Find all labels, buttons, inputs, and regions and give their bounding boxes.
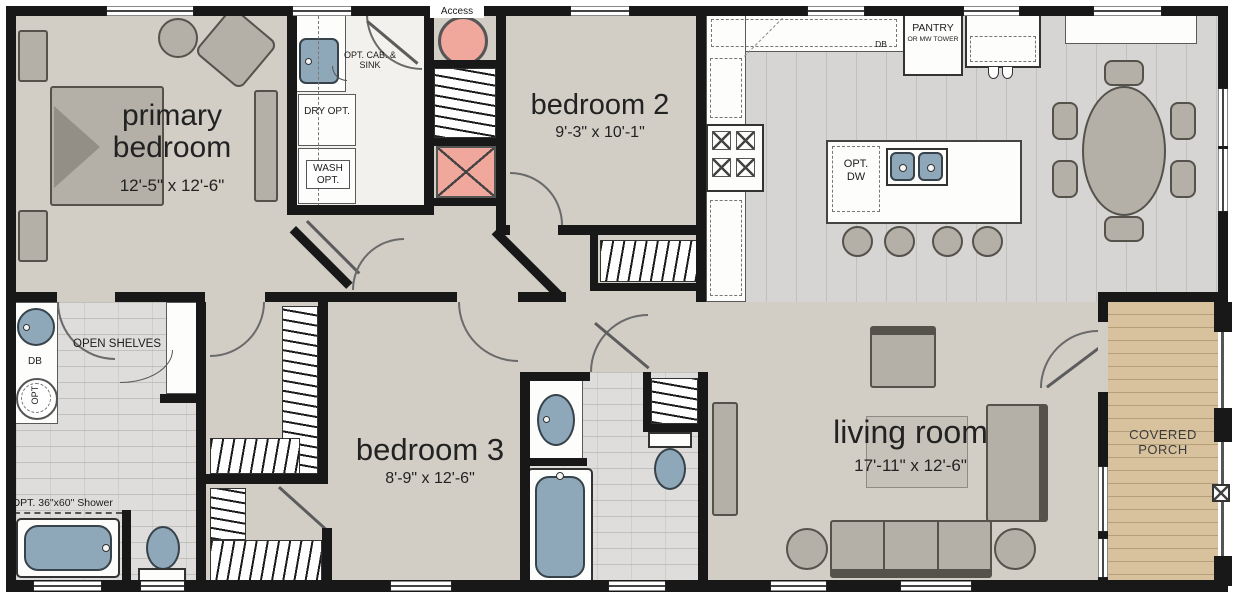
floor-plan: primary bedroom 12'-5" x 12'-6" bedroom … [0, 0, 1234, 596]
window [140, 581, 185, 591]
wall [265, 292, 457, 302]
toilet-tank-icon [648, 432, 692, 448]
side-table-icon [994, 528, 1036, 570]
chair-icon [1170, 160, 1196, 198]
upper-cabinets-dashed [710, 200, 742, 296]
porch-column-icon [1212, 484, 1230, 502]
wall [520, 372, 590, 381]
stool-icon [884, 226, 915, 257]
wall [115, 292, 205, 302]
room-dims-bedroom-2: 9'-3" x 10'-1" [502, 124, 698, 142]
stool-icon [972, 226, 1003, 257]
bathtub-basin-icon [24, 525, 112, 571]
wall [122, 510, 131, 590]
room-dims-primary-bedroom: 12'-5" x 12'-6" [82, 176, 262, 196]
closet-rod-icon [651, 378, 698, 424]
chair-icon [1104, 216, 1144, 242]
sofa-icon [830, 520, 992, 578]
db-kitchen-label: DB [870, 40, 892, 50]
room-label-bedroom-3: bedroom 3 [330, 434, 530, 467]
burner-icon [712, 158, 731, 177]
room-dims-bedroom-3: 8'-9" x 12'-6" [330, 470, 530, 488]
dry-opt-label: DRY OPT. [300, 106, 354, 118]
wall [6, 292, 57, 302]
door-opening [1098, 322, 1108, 392]
room-label-primary-bedroom: primary bedroom [82, 100, 262, 163]
chair-icon [1052, 102, 1078, 140]
porch-edge [1221, 302, 1224, 586]
burner-icon [736, 158, 755, 177]
opt-cab-sink-label: OPT. CAB. & SINK [340, 50, 400, 71]
window [390, 581, 452, 591]
room-label-bedroom-2: bedroom 2 [502, 90, 698, 120]
chase-icon [436, 146, 496, 198]
wall [496, 6, 506, 235]
water-heater-icon [438, 16, 488, 66]
window [1218, 88, 1228, 147]
wall [698, 372, 708, 590]
nightstand-icon [18, 210, 48, 262]
side-table-icon [786, 528, 828, 570]
faucet-icon [102, 544, 110, 552]
db-bath-label: DB [18, 356, 52, 368]
burner-icon [736, 131, 755, 150]
window [807, 6, 865, 16]
window [608, 581, 666, 591]
armchair-icon [870, 326, 936, 388]
room-dims-living-room: 17'-11" x 12'-6" [798, 456, 1023, 476]
bathtub-basin-icon [535, 476, 585, 578]
wall [643, 372, 651, 432]
wall [643, 424, 706, 432]
window [1093, 6, 1162, 16]
room-label-covered-porch: COVERED PORCH [1108, 428, 1218, 458]
wall [529, 458, 587, 466]
chair-icon [1170, 102, 1196, 140]
window [963, 6, 1020, 16]
window [770, 581, 827, 591]
opt-washer-label: OPT [30, 376, 40, 414]
sink-drain-icon [543, 416, 550, 423]
nightstand-icon [18, 30, 48, 82]
wall [424, 6, 434, 212]
upper-cabinets-dashed [710, 58, 742, 118]
wall [434, 198, 496, 206]
stool-icon [932, 226, 963, 257]
room-label-living-room: living room [798, 416, 1023, 450]
fridge-handle-icon [1002, 66, 1013, 79]
sink-drain-icon [899, 164, 907, 172]
wall [434, 138, 496, 146]
burner-icon [712, 131, 731, 150]
window [900, 581, 972, 591]
opt-dw-label: OPT. DW [834, 158, 878, 183]
window [292, 6, 352, 16]
sink-drain-icon [927, 164, 935, 172]
optional-shower-dashed [14, 512, 122, 514]
ottoman-icon [158, 18, 198, 58]
wall [696, 6, 706, 302]
sink-drain-icon [23, 324, 30, 331]
closet-rod-icon [210, 438, 300, 474]
porch-post [1214, 302, 1232, 332]
wall [558, 225, 706, 235]
pantry-label: PANTRY [905, 22, 961, 34]
stool-icon [842, 226, 873, 257]
window [1098, 538, 1108, 578]
closet-rod-icon [210, 540, 322, 582]
pantry-sub-label: OR MW TOWER [903, 36, 963, 44]
closet-rod-icon [210, 488, 246, 540]
wall [196, 302, 206, 590]
closet-rod-icon [434, 68, 496, 138]
wall [318, 302, 328, 484]
wall [287, 6, 297, 212]
dryer-icon [298, 94, 356, 146]
wall [1098, 292, 1228, 302]
shower-opt-label: OPT. 36"x60" Shower [12, 497, 126, 509]
access-label: Access [430, 6, 484, 18]
fridge-handle-icon [988, 66, 999, 79]
wash-opt-label: WASH OPT. [306, 160, 350, 189]
open-shelves-label: OPEN SHELVES [58, 338, 176, 351]
toilet-icon [654, 448, 686, 490]
tv-console-icon [712, 402, 738, 516]
window [1098, 466, 1108, 532]
closet-rod-icon [600, 240, 700, 282]
wall [322, 528, 332, 590]
wall [160, 394, 206, 403]
sink-drain-icon [305, 58, 312, 65]
window [570, 6, 630, 16]
window [33, 581, 102, 591]
window [1218, 148, 1228, 212]
wall [206, 474, 328, 484]
refrigerator-dashed [970, 36, 1036, 62]
faucet-icon [556, 472, 564, 480]
dining-table-icon [1082, 86, 1166, 216]
porch-post [1214, 556, 1232, 586]
chair-icon [1104, 60, 1144, 86]
chair-icon [1052, 160, 1078, 198]
wall [590, 283, 706, 291]
toilet-icon [146, 526, 180, 570]
wall [434, 60, 496, 68]
buffet-counter [1065, 14, 1197, 44]
wall [287, 205, 434, 215]
window [106, 6, 194, 16]
